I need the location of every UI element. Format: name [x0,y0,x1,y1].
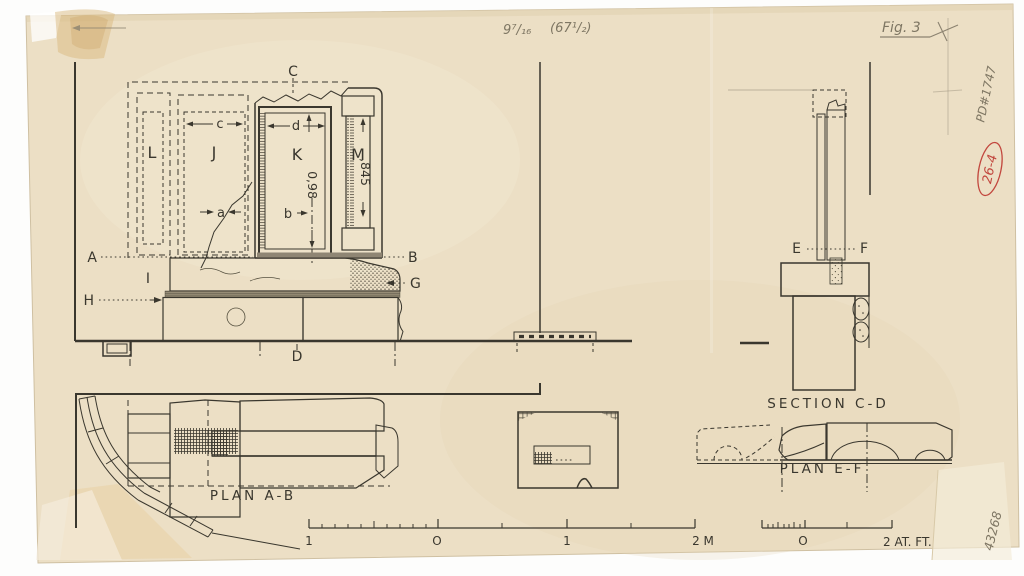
label-b: B [408,250,418,266]
metric-label-2m: 2 M [692,534,714,548]
label-part-k: K [292,145,303,164]
section-cd-title: SECTION C-D [767,396,888,412]
plan-ab-dark-patch [174,428,238,454]
plan-ab-tongue-cap [212,431,228,456]
drawing-canvas: C A B G H I D L J K M c d a b 0,98 ,845 [0,0,1024,576]
size-note: 9⁷/₁₆ [503,23,531,38]
m-comb-hatch [347,116,354,228]
joint-band [165,291,400,298]
scanned-drawing-sheet: C A B G H I D L J K M c d a b 0,98 ,845 [0,0,1024,576]
sketch-inner-dark [534,452,552,464]
label-part-l: L [148,143,157,162]
label-a: A [87,250,97,266]
label-h: H [83,293,94,309]
label-dim-b: b [284,207,292,222]
metric-label-1-left: 1 [305,534,313,548]
k-comb-hatch [260,113,266,249]
label-d-axis: D [292,349,303,365]
size-note-paren: (67¹/₂) [550,21,592,36]
plan-ef-title: PLAN E-F [780,461,865,477]
metric-label-0: O [432,534,441,548]
label-dim-a: a [217,206,225,221]
under-frame-shadow [257,253,382,258]
label-dim-c: c [216,117,223,132]
metric-label-1-right: 1 [563,534,571,548]
label-g: G [410,276,421,292]
paper-fold-line [710,8,713,353]
tape-bottom-right [932,462,1012,560]
feet-label-0: O [798,534,807,548]
plan-ab-title: PLAN A-B [210,488,296,504]
feet-label-2ft: 2 AT. FT. [883,535,932,549]
label-c: C [288,64,298,80]
label-i: I [146,271,150,287]
label-e: E [792,241,801,257]
dim-k-height: 0,98 [305,171,320,199]
label-dim-d: d [292,119,300,134]
label-f: F [860,241,868,257]
dim-m-height: ,845 [358,158,373,186]
section-column-foot [830,258,842,284]
label-part-j: J [211,143,217,162]
figure-label: Fig. 3 [882,20,921,36]
